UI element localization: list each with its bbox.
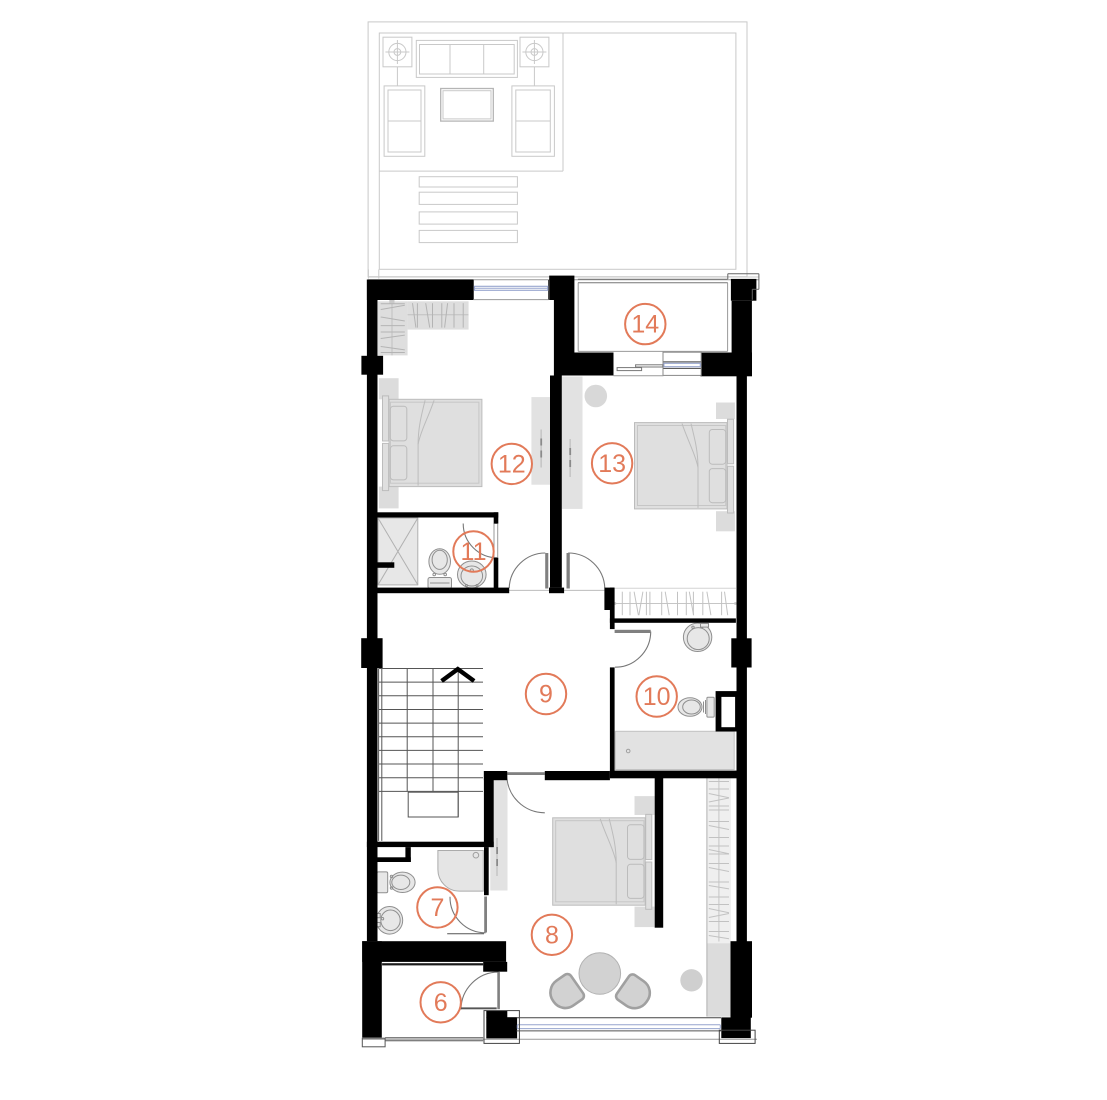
- svg-text:12: 12: [498, 450, 526, 478]
- svg-text:7: 7: [430, 894, 444, 922]
- svg-text:14: 14: [631, 311, 659, 339]
- svg-text:11: 11: [461, 538, 487, 566]
- svg-text:9: 9: [539, 681, 553, 709]
- svg-text:6: 6: [434, 989, 448, 1017]
- svg-text:10: 10: [643, 683, 671, 711]
- svg-text:8: 8: [545, 921, 559, 949]
- svg-text:13: 13: [598, 450, 626, 478]
